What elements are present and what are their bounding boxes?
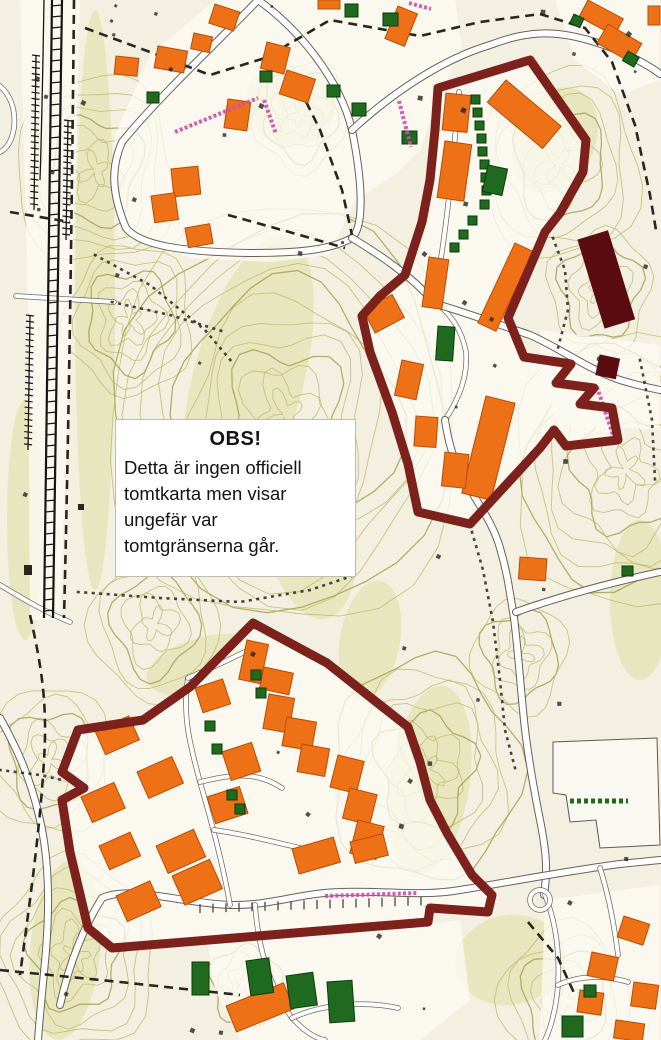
small-structure [24,565,32,575]
orange-building [185,224,213,248]
notice-text-line: ungefär var [124,507,347,533]
orange-building [151,193,179,223]
green-building [471,95,480,104]
terrain-dot [541,10,546,15]
green-building [260,71,272,82]
terrain-dot [298,251,303,256]
green-building [468,216,477,225]
notice-text-line: Detta är ingen officiell [124,455,347,481]
terrain-dot [427,761,432,766]
terrain-dot [270,5,273,8]
terrain-dot [219,1030,224,1035]
map-viewport: OBS! Detta är ingen officiell tomtkarta … [0,0,661,1040]
green-building [562,1016,583,1037]
orange-building [613,1020,644,1040]
notice-text-line: tomtgränserna går. [124,533,347,559]
terrain-dot [37,208,40,211]
terrain-dot [557,702,561,706]
green-building [256,688,266,698]
orange-building [441,452,468,488]
terrain-dot [223,133,227,137]
green-building [286,972,317,1008]
green-building [473,108,482,117]
terrain-dot [112,33,115,36]
terrain-dot [341,241,344,244]
green-building [235,804,245,814]
small-structure [78,504,84,510]
notice-text-line: tomtkarta men visar [124,481,347,507]
green-building [212,744,222,754]
terrain-dot [542,588,546,592]
green-building [475,121,484,130]
orange-building [191,33,213,53]
terrain-dot [417,95,423,101]
green-building [383,13,398,26]
orange-building [631,982,659,1009]
orange-building [442,93,471,132]
green-building [327,980,355,1023]
orange-building [648,6,660,25]
green-building [584,985,596,997]
terrain-dot [455,406,458,409]
green-building [345,4,358,17]
green-building [478,147,487,156]
terrain-dot [50,170,55,175]
green-building [147,92,159,103]
green-building [622,566,633,576]
green-building [227,790,237,800]
orange-building [587,952,618,981]
green-building [459,230,468,239]
green-building [246,958,274,996]
orange-building [318,0,340,9]
orange-building [171,166,201,197]
notice-title: OBS! [124,428,347,451]
green-building [477,134,486,143]
green-building [251,670,261,680]
orange-building [518,557,546,581]
orange-building [114,56,139,76]
green-building [436,326,455,361]
terrain-dot [423,1007,426,1010]
green-building [327,85,340,97]
green-building [480,200,489,209]
green-building [192,962,209,995]
green-building [450,243,459,252]
green-building [352,103,366,116]
orange-building [414,416,438,447]
notice-box: OBS! Detta är ingen officiell tomtkarta … [115,419,356,577]
terrain-dot [563,459,568,464]
green-building [205,721,215,731]
terrain-dot [476,698,480,702]
orange-building [297,744,329,776]
terrain-dot [624,857,628,861]
orange-building [224,99,251,131]
